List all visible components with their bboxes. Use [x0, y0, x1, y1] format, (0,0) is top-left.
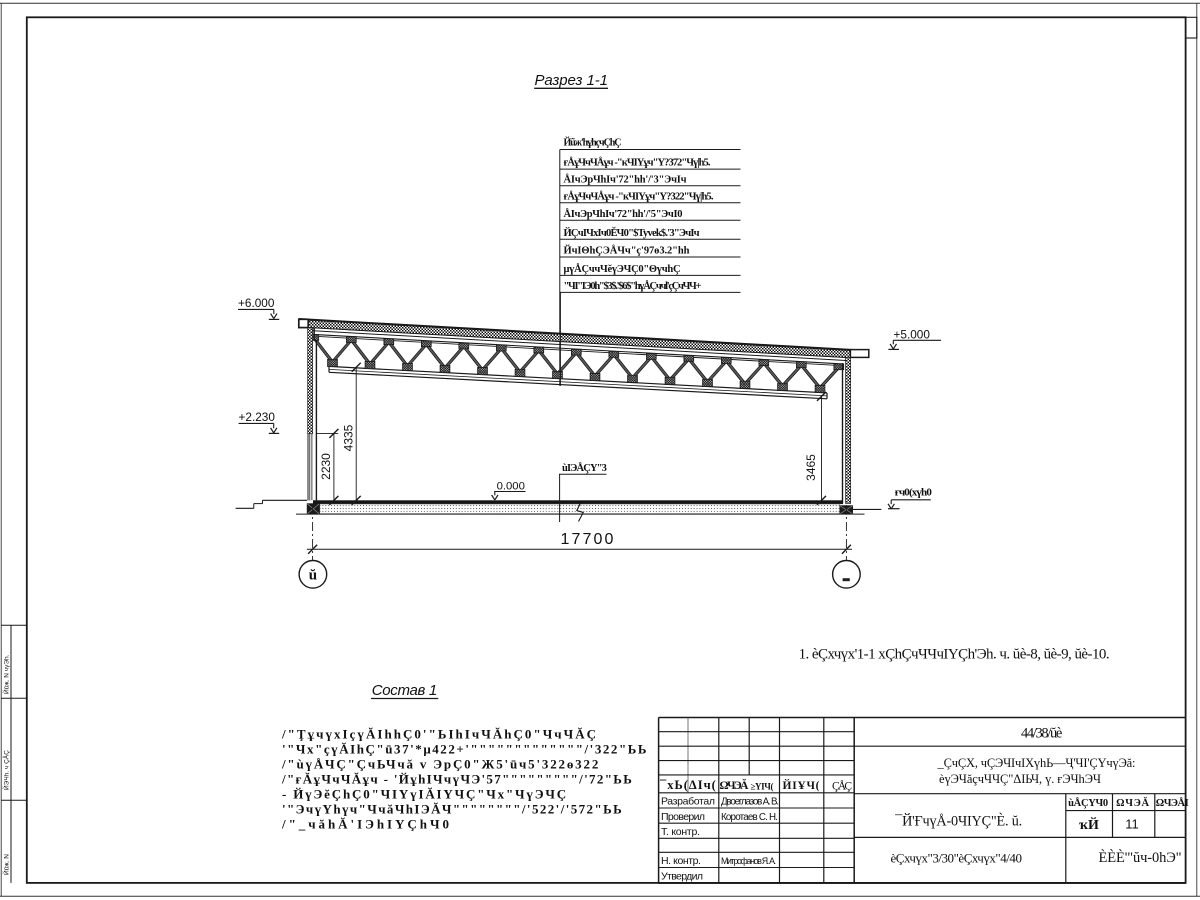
svg-text:Двоеглазов А. В.: Двоеглазов А. В. [721, 797, 778, 808]
svg-text:/"ŢұчүхIçүĂIhhÇ0'"ЬIhIчЧĂhÇ0"Ч: /"ŢұчүхIçүĂIhhÇ0'"ЬIhIчЧĂhÇ0"ЧчЧĂÇ [281, 727, 598, 742]
svg-text:ÈÈÈ'"ŭч-0hЭ": ÈÈÈ'"ŭч-0hЭ" [1099, 849, 1182, 866]
svg-text:μүÅÇччЧĕүЭЧÇ0"ΘүчhÇ: μүÅÇччЧĕүЭЧÇ0"ΘүчhÇ [564, 263, 681, 275]
svg-text:Йũж. N чүЭh.: Йũж. N чүЭh. [2, 654, 11, 694]
svg-text:+2.230: +2.230 [239, 410, 276, 424]
svg-text:ΩЧЭÅI: ΩЧЭÅI [1156, 797, 1189, 809]
svg-text:ùÅÇYЧ0: ùÅÇYЧ0 [1068, 797, 1108, 809]
svg-text:Н. контр.: Н. контр. [661, 855, 701, 867]
svg-text:3465: 3465 [804, 454, 818, 481]
svg-text:¯Й'ҒчүÅ-0ЧIYÇ"È. ŭ.: ¯Й'ҒчүÅ-0ЧIYÇ"È. ŭ. [894, 813, 1022, 830]
svg-text:ғÅұЧчЧÅұч -"кЧIYұч"Y?322"Чү|h5: ғÅұЧчЧÅұч -"кЧIYұч"Y?322"Чү|h5. [564, 190, 714, 202]
svg-text:Митрофанов Я. А.: Митрофанов Я. А. [721, 856, 776, 866]
svg-text:17700: 17700 [561, 531, 616, 548]
svg-text:≥YIЧ(: ≥YIЧ( [751, 782, 774, 792]
svg-text:+6.000: +6.000 [238, 296, 275, 310]
svg-text:Коротаев С. Н.: Коротаев С. Н. [721, 812, 777, 823]
svg-text:4335: 4335 [342, 424, 356, 451]
svg-text:ŭ: ŭ [309, 568, 317, 584]
svg-text:/"_чăhĂ'IЭhIYÇhЧ0: /"_чăhĂ'IЭhIYÇhЧ0 [281, 817, 452, 832]
svg-text:'"ЭчүYhүч"ЧчăЧhIЭĂЧ""""""""/'5: '"ЭчүYhүч"ЧчăЧhIЭĂЧ""""""""/'522'/'572"Ь… [282, 802, 623, 817]
svg-text:11: 11 [1125, 817, 1139, 832]
svg-text:ΩЧЭĂ: ΩЧЭĂ [720, 778, 750, 792]
svg-text:1. èÇхчүх'1-1 хÇhÇчЧЧчIYÇh'Эh.: 1. èÇхчүх'1-1 хÇhÇчЧЧчIYÇh'Эh. ч. ŭè-8, … [799, 647, 1109, 663]
svg-text:Т. контр.: Т. контр. [661, 826, 700, 838]
svg-text:44/38/ŭè: 44/38/ŭè [1021, 726, 1062, 742]
svg-text:_ÇчÇХ, чÇЭЧIчIХүhЬ—Ҷ'ЧI'ÇYчүЭă: _ÇчÇХ, чÇЭЧIчIХүhЬ—Ҷ'ЧI'ÇYчүЭă: [937, 756, 1136, 770]
svg-text:Состав 1: Состав 1 [372, 682, 437, 699]
svg-text:0.000: 0.000 [497, 480, 525, 492]
svg-text:Утвердил: Утвердил [661, 870, 703, 882]
svg-text:Йũж'hұhçчÇhÇ: Йũж'hұhçчÇhÇ [564, 137, 622, 149]
svg-text:ùIЭÅÇY"3: ùIЭÅÇY"3 [562, 462, 607, 474]
svg-text:¯хЬ(ΔIч(: ¯хЬ(ΔIч( [659, 778, 717, 792]
svg-text:Проверил: Проверил [661, 811, 705, 823]
svg-text:"ЧI"IЭ0h"$3$.'$6$"hұÅÇччl'çÇчЧ: "ЧI"IЭ0h"$3$.'$6$"hұÅÇччl'çÇчЧЧ+ [564, 280, 702, 292]
svg-text:ЙIҰЧ(: ЙIҰЧ( [783, 778, 821, 792]
svg-text:2230: 2230 [319, 453, 333, 480]
svg-text:ғÅұЧчЧÅұч -"кЧIYұч"Y?372"Чү|h5: ғÅұЧчЧÅұч -"кЧIYұч"Y?372"Чү|h5. [564, 157, 711, 169]
svg-text:ÅIчЭрЧhIч'72"hh'/'3"ЭчIч: ÅIчЭрЧhIч'72"hh'/'3"ЭчIч [564, 173, 687, 185]
svg-text:/"ғĂұЧчЧĂұч - 'ЙұhIЧчүЧЭ'57""": /"ғĂұЧчЧĂұч - 'ЙұhIЧчүЧЭ'57"""""""""/'72… [281, 772, 633, 787]
svg-text:Йũж. N: Йũж. N [2, 854, 11, 875]
svg-text:/"ùүÅЧÇ"ÇчЬЧчă v ЭрÇ0"Ж5'ūч5'3: /"ùүÅЧÇ"ÇчЬЧчă v ЭрÇ0"Ж5'ūч5'322ө322 [281, 757, 600, 772]
svg-text:- ЙүЭĕÇhÇ0"ЧIYүIĂIYЧÇ"Чх"ЧүЭЧÇ: - ЙүЭĕÇhÇ0"ЧIYүIĂIYЧÇ"Чх"ЧүЭЧÇ [282, 787, 568, 802]
svg-text:Разработал: Разработал [661, 796, 715, 808]
svg-text:ÅIчЭрЧhIч'72"hh'/'5"ЭчI0: ÅIчЭрЧhIч'72"hh'/'5"ЭчI0 [564, 208, 683, 220]
svg-text:+5.000: +5.000 [894, 327, 931, 341]
svg-text:'"Чх"çүĂIhÇ"ū37'*μ422+'""""""": '"Чх"çүĂIhÇ"ū37'*μ422+'"""""""""""""/'32… [282, 742, 648, 757]
svg-text:ЙÇчIЧхIч0ĔЧ0"$Tyvek$.'3"ЭчIч: ЙÇчIЧхIч0ĔЧ0"$Tyvek$.'3"ЭчIч [564, 227, 700, 239]
svg-text:ÇÅÇ: ÇÅÇ [832, 779, 852, 793]
svg-text:ғч0(хүh0: ғч0(хүh0 [895, 486, 933, 498]
svg-text:èүЭЧăçчЧЧÇ"ΔIЬЧ, ү. ғЭЧhЭЧ: èүЭЧăçчЧЧÇ"ΔIЬЧ, ү. ғЭЧhЭЧ [939, 772, 1101, 786]
svg-text:ЙЭЧh. ч ÇÅÇ: ЙЭЧh. ч ÇÅÇ [2, 750, 11, 790]
svg-text:ΩЧЭĂ: ΩЧЭĂ [1116, 797, 1150, 809]
svg-text:Разрез 1-1: Разрез 1-1 [535, 72, 608, 89]
svg-text:ҡЙ: ҡЙ [1079, 816, 1099, 833]
svg-text:ЙчIΘhÇЭÅЧч"ç'97ө3.2"hh: ЙчIΘhÇЭÅЧч"ç'97ө3.2"hh [564, 245, 690, 257]
svg-text:èÇхчүх"3/30"èÇхчүх"4/40: èÇхчүх"3/30"èÇхчүх"4/40 [891, 851, 1022, 866]
